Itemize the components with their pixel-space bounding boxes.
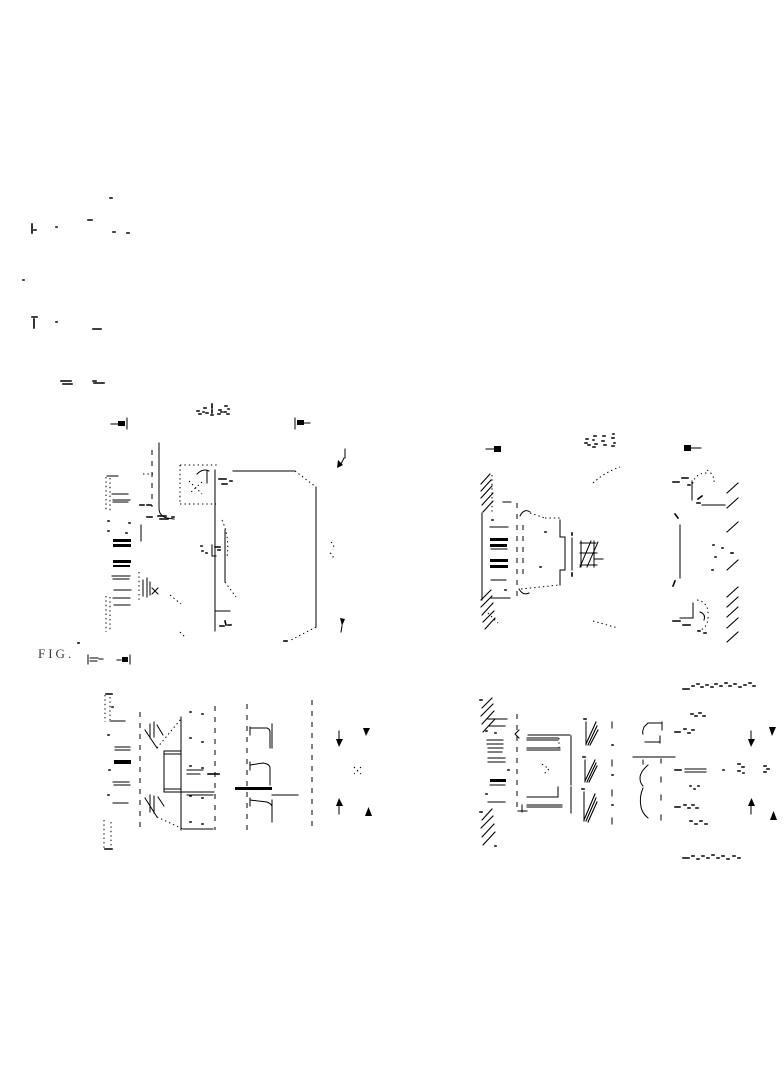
magnet-gap-detail xyxy=(180,465,232,504)
center-hatched-element xyxy=(572,533,603,576)
lamination-stack-left xyxy=(106,476,131,632)
sheet-caption-group: FIG. xyxy=(38,643,79,661)
left-wall-hatched xyxy=(481,474,498,629)
stray-scan-marks xyxy=(23,198,129,384)
figure-a-bottom-markers xyxy=(88,655,130,664)
section-cut-marker-right xyxy=(295,418,310,429)
dimension-arrow-inner-top xyxy=(748,731,755,747)
hatched-wedges xyxy=(582,719,598,822)
lamination-stack xyxy=(108,707,131,803)
faint-caption-marks-bottom xyxy=(683,855,740,859)
dimension-arrow-outer-top xyxy=(363,728,370,736)
section-cut-marker-left xyxy=(486,446,501,452)
leader-arrow-upper xyxy=(337,449,345,468)
frame-bracket xyxy=(139,443,186,638)
section-cut-marker-left xyxy=(111,418,127,429)
figure-top-left xyxy=(88,404,345,664)
horn-cone xyxy=(517,503,565,600)
dimension-arrow-outer-bottom xyxy=(770,811,777,820)
dimension-arrow-outer-bottom xyxy=(365,807,372,816)
leader-arrow-lower xyxy=(340,618,345,632)
sheet-caption: FIG. xyxy=(38,646,74,661)
pole-and-coil xyxy=(201,470,236,631)
left-dotted-strips xyxy=(104,694,112,850)
axis-dash-column xyxy=(612,722,613,824)
dimension-arrow-outer-top xyxy=(769,727,776,736)
section-cut-marker-right xyxy=(684,445,701,451)
right-wall-hatched xyxy=(727,483,738,642)
lens-bracket-elements xyxy=(633,713,724,824)
basket-outline xyxy=(233,471,334,641)
figure-bottom-right xyxy=(480,683,777,859)
dimension-arrow-inner-bottom xyxy=(336,798,343,814)
rim-circle-arcs xyxy=(593,467,620,628)
figure-top-right xyxy=(481,434,738,642)
dimension-arrow-inner-top xyxy=(336,731,343,747)
cone-assembly xyxy=(140,712,183,832)
small-tick-marks xyxy=(738,764,769,773)
figure-bottom-left xyxy=(104,694,372,850)
figure-caption-marks xyxy=(197,404,229,415)
lamination-stack xyxy=(490,502,511,598)
carrier-boxes xyxy=(515,714,571,813)
dimension-arrow-inner-bottom xyxy=(748,798,755,814)
faint-caption-marks-top xyxy=(683,683,755,689)
bracket-elements xyxy=(235,724,298,822)
core-rectangle xyxy=(164,751,219,829)
drawing-canvas: FIG. xyxy=(0,0,784,1066)
figure-caption-marks xyxy=(585,434,615,447)
drawing-sheet: FIG. xyxy=(0,0,784,1066)
lamination-stack xyxy=(486,719,509,802)
cross-mark xyxy=(354,767,361,774)
left-hatched-blocks xyxy=(480,698,496,846)
right-frame-and-gasket xyxy=(673,470,725,633)
